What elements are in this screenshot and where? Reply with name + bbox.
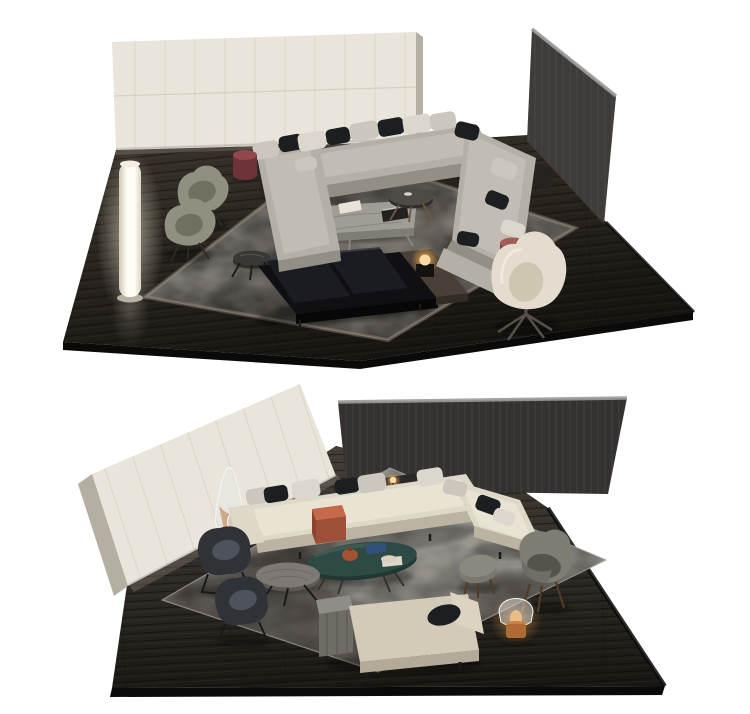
dome-base xyxy=(506,624,526,638)
mini-lamp-bulb xyxy=(390,477,396,483)
rust-side-table xyxy=(312,505,346,544)
table-front xyxy=(316,516,346,544)
decor-bowl xyxy=(381,555,397,563)
decor-cup xyxy=(404,192,412,196)
sphere-lamp-base xyxy=(416,264,434,277)
table-top xyxy=(256,563,320,588)
shadow xyxy=(495,318,559,334)
burgundy-cylinder-table xyxy=(233,150,257,180)
glass-dome-lamp xyxy=(490,594,542,646)
scene-top xyxy=(63,29,694,369)
render-canvas xyxy=(0,0,750,714)
table-top xyxy=(389,189,433,206)
furniture-render-image xyxy=(0,0,750,714)
shelf-front xyxy=(319,609,353,657)
lam p-top xyxy=(120,161,140,168)
scene-bottom xyxy=(78,384,665,697)
cylinder-bottom xyxy=(233,170,257,180)
cylinder-top xyxy=(233,150,257,160)
chaise-wood-shelf xyxy=(316,595,353,657)
lamp-column xyxy=(119,163,141,297)
decor-jar-knob xyxy=(348,547,352,551)
sphere-lamp-bulb xyxy=(420,255,431,266)
